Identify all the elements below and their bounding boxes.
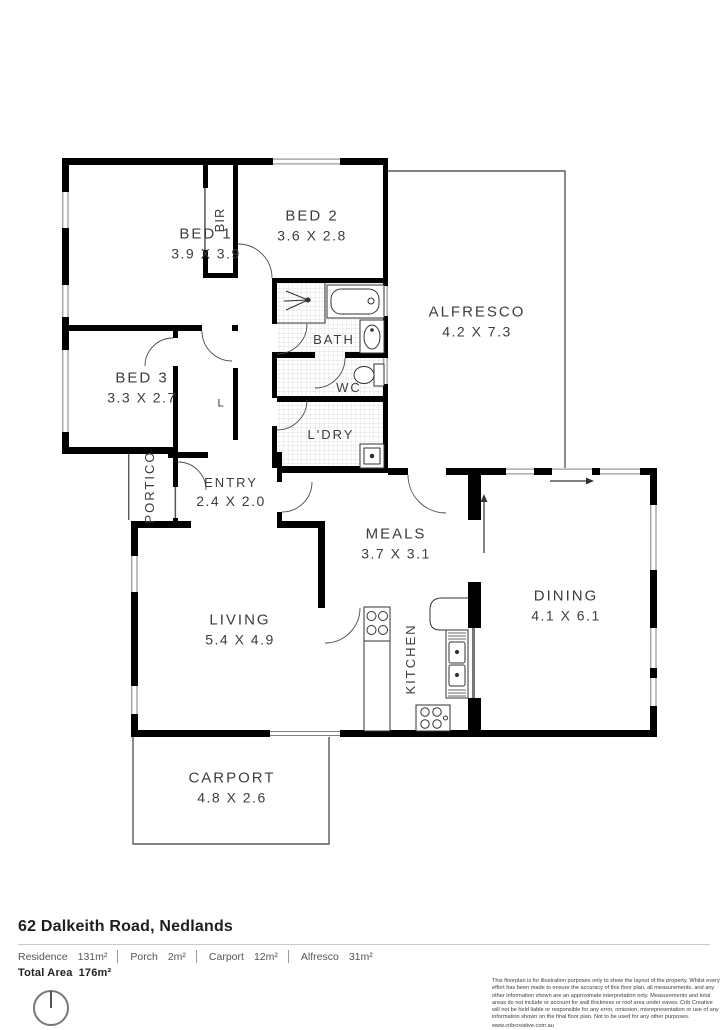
room-label-carport: CARPORT 4.8 X 2.6 [188,768,275,807]
area-value: 2m² [168,951,186,963]
flow-arrows [481,478,595,554]
area-label: Carport [209,951,244,963]
area-value: 12m² [254,951,278,963]
kitchen-bench [364,641,390,731]
room-label-living: LIVING 5.4 X 4.9 [205,610,275,649]
thin-wall-servery [472,628,475,698]
front-door [173,487,178,518]
room-label-laundry: L'DRY [308,426,355,444]
floorplan-page: { "plan": { "rooms": { "bed1": {"name": … [0,0,724,1024]
area-value: 131m² [78,951,108,963]
disclaimer-block: This floorplan is for illustration purpo… [492,978,720,1030]
area-label: Alfresco [301,951,339,963]
room-label-dining: DINING 4.1 X 6.1 [531,586,601,625]
disclaimer-text: This floorplan is for illustration purpo… [492,978,720,1022]
sliding-door-meals [552,468,592,475]
entry-direction-arrow [481,494,488,553]
area-separator [117,950,118,963]
bathtub-icon [327,285,384,318]
area-separator [288,950,289,963]
cooktop-icon [364,607,390,641]
vanity-basin-icon [360,320,384,353]
room-label-bed1: BED 1 3.9 X 3.9 [171,224,241,263]
area-label: Porch [130,951,157,963]
area-label: Residence [18,951,68,963]
room-label-wc: WC [336,379,362,397]
area-value: 31m² [349,951,373,963]
room-label-kitchen: KITCHEN [402,623,420,694]
double-sink-icon [446,630,468,698]
area-summary: Residence 131m² Porch 2m² Carport 12m² A… [18,950,381,963]
room-label-alfresco: ALFRESCO 4.2 X 7.3 [429,302,526,341]
room-label-meals: MEALS 3.7 X 3.1 [361,524,431,563]
floorplan-svg [0,0,724,910]
divider-line [18,944,710,945]
sliding-door-carport [270,730,340,737]
room-label-bed2: BED 2 3.6 X 2.8 [277,206,347,245]
slide-direction-arrow [550,478,594,485]
laundry-trough-icon [360,444,384,468]
total-area: Total Area176m² [18,967,117,979]
oven-icon [416,705,450,731]
property-address: 62 Dalkeith Road, Nedlands [18,918,233,936]
kitchen-return-bench [430,598,468,630]
area-separator [196,950,197,963]
room-label-bed3: BED 3 3.3 X 2.7 [107,368,177,407]
room-label-entry: ENTRY 2.4 X 2.0 [196,474,266,510]
room-label-bath: BATH [313,331,355,349]
room-label-portico: PORTICO [141,451,159,524]
north-compass-icon [33,990,69,1026]
floorplan-drawing: BED 1 3.9 X 3.9 BED 2 3.6 X 2.8 BED 3 3.… [0,0,724,910]
compass-needle [50,991,52,1008]
room-label-bir: BIR [211,208,229,233]
room-label-linen: L [217,397,224,412]
